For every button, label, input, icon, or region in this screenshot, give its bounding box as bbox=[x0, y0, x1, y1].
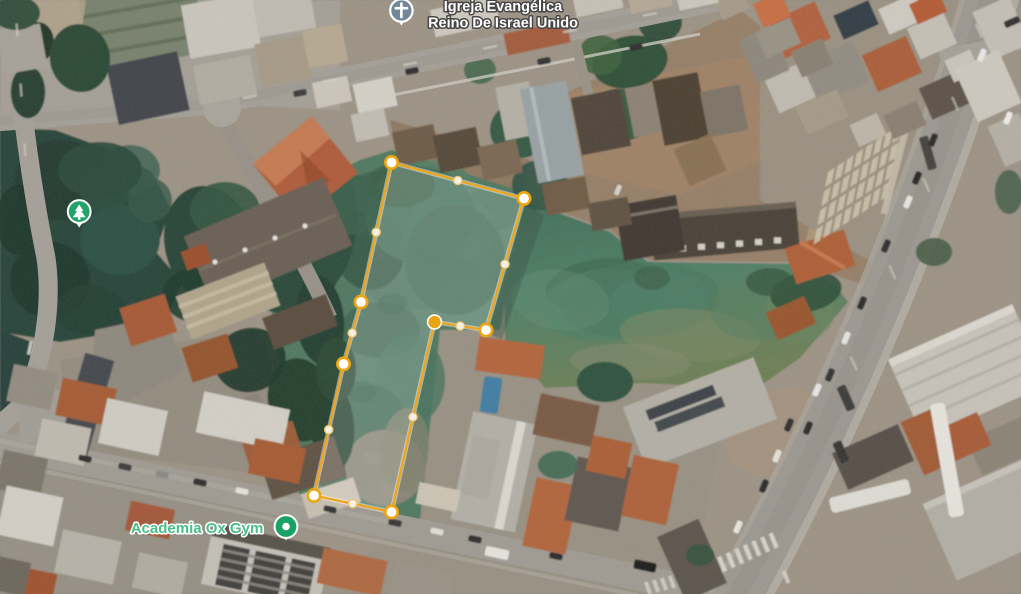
svg-text:Igreja Evangélica: Igreja Evangélica bbox=[444, 0, 563, 15]
svg-text:Academia Ox Gym: Academia Ox Gym bbox=[131, 520, 264, 537]
svg-text:Reino De Israel Unido: Reino De Israel Unido bbox=[428, 16, 578, 32]
